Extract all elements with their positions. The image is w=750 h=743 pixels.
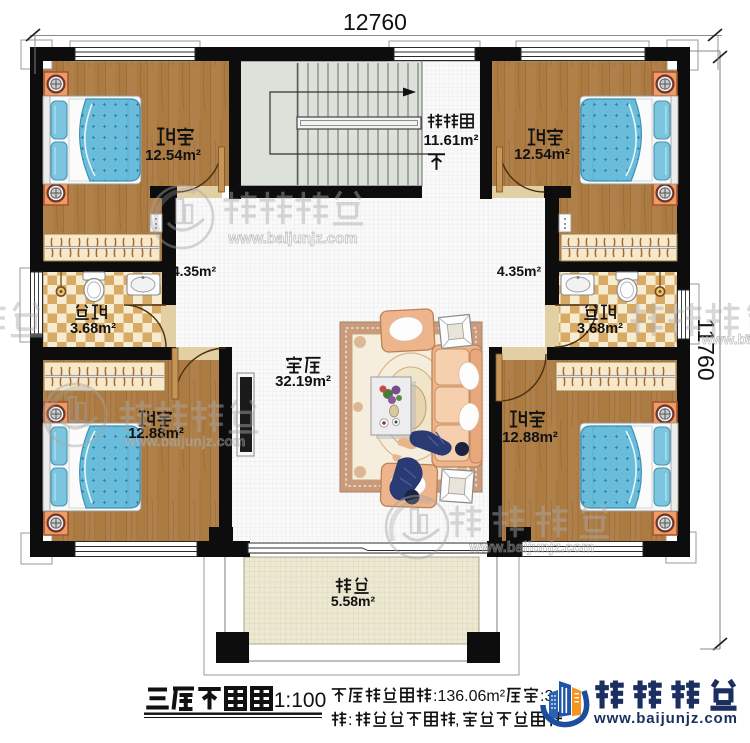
svg-text:3.68m²: 3.68m²: [70, 321, 116, 337]
svg-text:11.61m²: 11.61m²: [423, 132, 478, 149]
svg-text:1:100: 1:100: [274, 689, 327, 712]
svg-text:www.baijunjz.com: www.baijunjz.com: [124, 433, 246, 449]
svg-text:12.54m²: 12.54m²: [514, 146, 570, 163]
svg-text:4.35m²: 4.35m²: [497, 263, 542, 279]
svg-text:www.baijunjz.com: www.baijunjz.com: [701, 331, 750, 347]
svg-text:5.58m²: 5.58m²: [331, 593, 376, 609]
svg-text::136.06m²: :136.06m²: [433, 688, 506, 705]
svg-text:12.54m²: 12.54m²: [145, 147, 201, 164]
svg-text:12.88m²: 12.88m²: [502, 429, 558, 446]
svg-text:12760: 12760: [343, 9, 407, 35]
svg-text:www.baijunjz.com: www.baijunjz.com: [468, 540, 594, 556]
svg-text::: :: [348, 712, 352, 729]
svg-text:32.19m²: 32.19m²: [275, 373, 331, 390]
svg-text:,: ,: [455, 712, 459, 729]
svg-text:www.baijunjz.com: www.baijunjz.com: [593, 710, 738, 727]
svg-text:4.35m²: 4.35m²: [172, 263, 217, 279]
svg-text:www.baijunjz.com: www.baijunjz.com: [227, 230, 357, 247]
svg-text:3.68m²: 3.68m²: [577, 321, 623, 337]
